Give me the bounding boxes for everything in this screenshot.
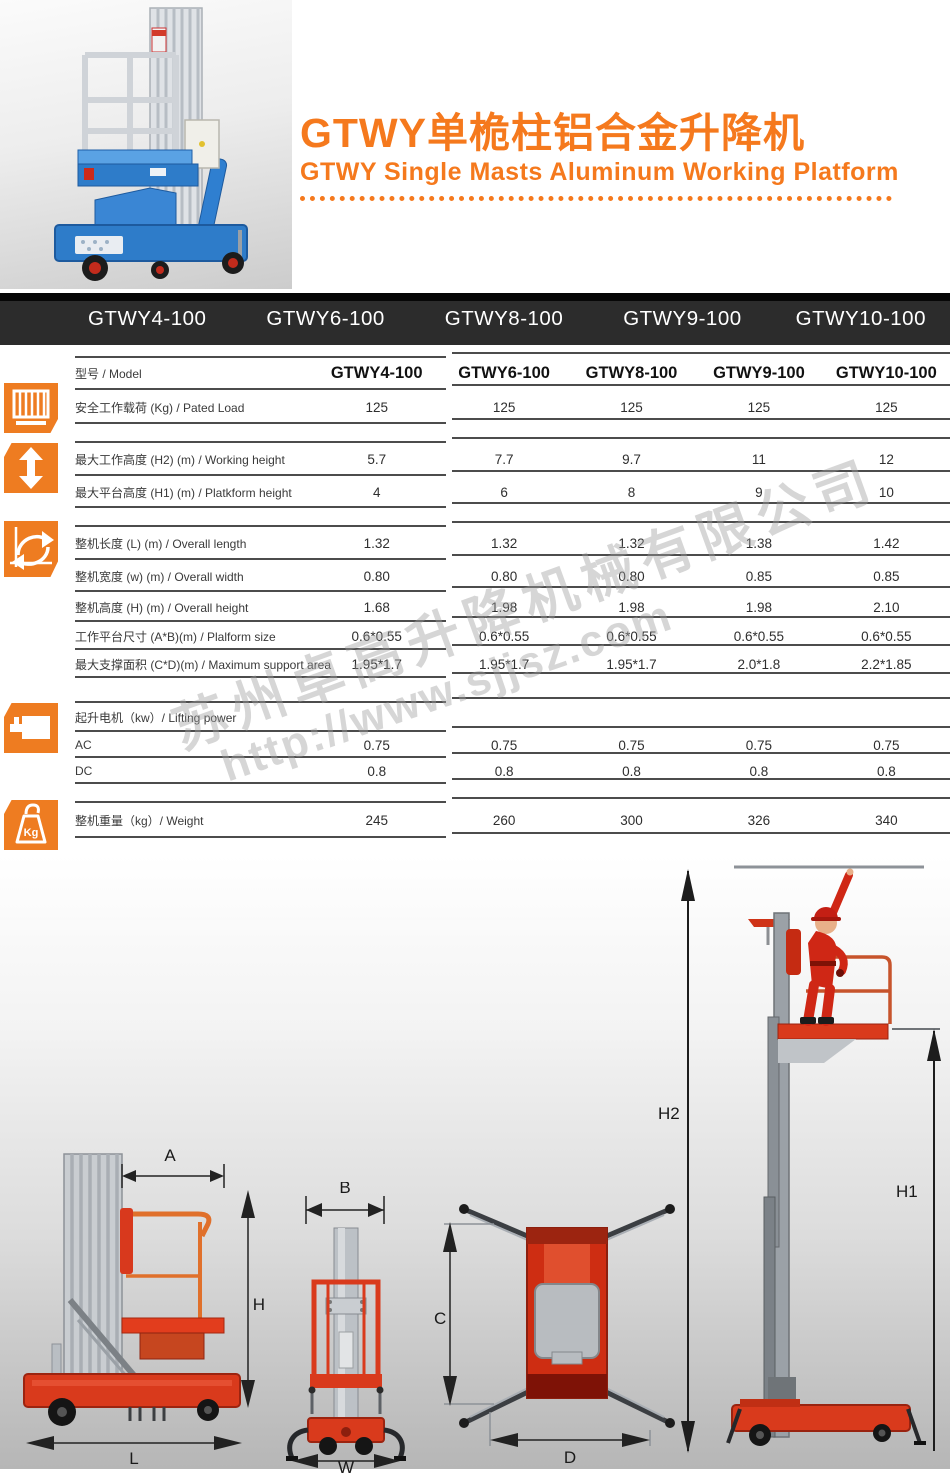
table-rule [452,726,950,728]
table-rule [452,502,950,504]
cage-load-icon [4,383,58,433]
spec-value: 0.80 [313,569,440,584]
spec-value: 1.95*1.7 [313,657,440,672]
spec-value: 0.8 [568,764,695,779]
spec-row-label: 整机重量（kg）/ Weight [75,812,313,829]
spec-value: 0.8 [440,764,567,779]
spec-row: 起升电机（kw）/ Lifting power [75,702,950,732]
spec-value: 326 [695,813,822,828]
dim-label-b: B [339,1182,350,1197]
spec-value: 0.75 [823,738,950,753]
rotation-dimension-icon [4,521,58,577]
spec-value: 0.80 [568,569,695,584]
table-rule [452,832,950,834]
dim-label-h2: H2 [658,1104,680,1123]
spec-row-label: 整机宽度 (w) (m) / Overall width [75,568,313,585]
height-range-icon [4,443,58,493]
dim-label-h: H [253,1295,265,1314]
table-rule [75,801,446,803]
table-rule [452,586,950,588]
spec-value: 0.6*0.55 [568,629,695,644]
spec-value: 5.7 [313,452,440,467]
spec-value: 7.7 [440,452,567,467]
spec-value: 260 [440,813,567,828]
table-rule [452,418,950,420]
spec-row-label: 工作平台尺寸 (A*B)(m) / Plalform size [75,628,313,645]
spec-value: 1.98 [695,600,822,615]
spec-row: 整机重量（kg）/ Weight245260300326340 [75,802,950,838]
spec-value: 0.85 [695,569,822,584]
model-bar-item: GTWY8-100 [415,307,593,331]
spec-value: GTWY8-100 [568,364,695,383]
weight-kg-icon: Kg [4,800,58,850]
spec-value: 0.8 [823,764,950,779]
spec-value: 2.0*1.8 [695,657,822,672]
spec-sheet-page: { "header": { "title_cn": "GTWY单桅柱铝合金升降机… [0,0,950,1469]
spec-value: GTWY10-100 [823,364,950,383]
spec-value: 1.42 [823,536,950,551]
dim-label-a: A [164,1148,176,1165]
spec-value: 0.75 [313,738,440,753]
spec-value: 1.95*1.7 [568,657,695,672]
kg-glyph-label: Kg [24,827,39,839]
spec-value: 2.10 [823,600,950,615]
model-bar: GTWY4-100 GTWY6-100 GTWY8-100 GTWY9-100 … [0,293,950,345]
spec-row-label: AC [75,738,313,752]
dim-label-d: D [564,1448,576,1467]
spec-row: 整机长度 (L) (m) / Overall length1.321.321.3… [75,526,950,560]
spec-value: 245 [313,813,440,828]
spec-value: GTWY6-100 [440,364,567,383]
spec-value: 1.98 [568,600,695,615]
table-rule [75,782,446,784]
spec-row: 整机宽度 (w) (m) / Overall width0.800.800.80… [75,560,950,592]
spec-row: 工作平台尺寸 (A*B)(m) / Plalform size0.6*0.550… [75,622,950,650]
table-rule [75,356,446,358]
spec-value: 0.6*0.55 [823,629,950,644]
dim-label-w: W [338,1458,354,1474]
spec-value: 8 [568,485,695,500]
spec-value: GTWY9-100 [695,364,822,383]
table-rule [452,752,950,754]
diagrams-section: A H L B [0,855,950,1469]
spec-value: 1.38 [695,536,822,551]
spec-value: 1.95*1.7 [440,657,567,672]
spec-value: 9.7 [568,452,695,467]
spec-row: DC0.80.80.80.80.8 [75,758,950,784]
page-title-block: GTWY单桅柱铝合金升降机 GTWY Single Masts Aluminum… [300,112,900,201]
spec-value: 0.75 [440,738,567,753]
spec-value: 2.2*1.85 [823,657,950,672]
spec-row-label: 最大平台高度 (H1) (m) / Platkform height [75,484,313,501]
dim-label-c: C [434,1309,446,1328]
spec-value: 9 [695,485,822,500]
table-rule [452,644,950,646]
spec-value: 0.75 [695,738,822,753]
spec-value: 0.8 [695,764,822,779]
spec-row: AC0.750.750.750.750.75 [75,732,950,758]
table-rule [75,525,446,527]
table-rule [452,778,950,780]
spec-value: 125 [695,400,822,415]
model-bar-item: GTWY9-100 [593,307,771,331]
spec-value: 1.98 [440,600,567,615]
table-rule [75,422,446,424]
spec-row: 最大平台高度 (H1) (m) / Platkform height468910 [75,476,950,508]
spec-row-label: 最大支撑面积 (C*D)(m) / Maximum support area [75,656,313,673]
table-rule [452,672,950,674]
page-title-cn: GTWY单桅柱铝合金升降机 [300,112,900,155]
spec-value: 4 [313,485,440,500]
table-rule [75,676,446,678]
spec-row: 最大工作高度 (H2) (m) / Working height5.77.79.… [75,442,950,476]
table-rule [452,797,950,799]
spec-value: 125 [440,400,567,415]
spec-value: 125 [823,400,950,415]
table-rule [75,506,446,508]
spec-row-label: 最大工作高度 (H2) (m) / Working height [75,451,313,468]
spec-row-label: 整机高度 (H) (m) / Overall height [75,599,313,616]
spec-table-section: 苏州卓高升降机械有限公司 http://www.sjjsz.com [0,345,950,855]
model-bar-item: GTWY10-100 [772,307,950,331]
table-rule [452,437,950,439]
page-title-en: GTWY Single Masts Aluminum Working Platf… [300,158,900,187]
table-rule [452,521,950,523]
diagram-raised-view: H2 H1 [656,857,948,1467]
spec-rows: 型号 / ModelGTWY4-100GTWY6-100GTWY8-100GTW… [75,357,950,838]
dim-label-h1: H1 [896,1182,918,1201]
blue-lift-photo-drawing [0,0,292,289]
spec-row-label: DC [75,764,313,778]
spec-value: 125 [313,400,440,415]
spec-row-label: 整机长度 (L) (m) / Overall length [75,535,313,552]
table-rule [75,441,446,443]
spec-value: GTWY4-100 [313,364,440,383]
spec-value: 0.80 [440,569,567,584]
spec-value: 1.32 [440,536,567,551]
spec-row-label: 起升电机（kw）/ Lifting power [75,709,313,726]
spec-value: 0.6*0.55 [313,629,440,644]
diagram-front-view: B W [272,1182,422,1474]
spec-value: 0.85 [823,569,950,584]
spec-row: 型号 / ModelGTWY4-100GTWY6-100GTWY8-100GTW… [75,357,950,390]
table-rule [452,697,950,699]
spec-value: 0.6*0.55 [440,629,567,644]
model-bar-item: GTWY6-100 [236,307,414,331]
spec-value: 12 [823,452,950,467]
spec-row: 整机高度 (H) (m) / Overall height1.681.981.9… [75,592,950,622]
spec-row: 最大支撑面积 (C*D)(m) / Maximum support area1.… [75,650,950,678]
table-rule [75,701,446,703]
spec-value: 0.6*0.55 [695,629,822,644]
diagram-top-view: C D [432,1194,677,1469]
product-photo [0,0,292,289]
spec-value: 1.32 [568,536,695,551]
table-rule [75,836,446,838]
spec-value: 0.75 [568,738,695,753]
model-bar-item: GTWY4-100 [58,307,236,331]
spec-row-label: 安全工作载荷 (Kg) / Pated Load [75,399,313,416]
table-rule [452,616,950,618]
spec-value: 1.68 [313,600,440,615]
table-rule [452,470,950,472]
table-rule [452,352,950,354]
spec-row-label: 型号 / Model [75,365,313,382]
spec-row: 安全工作载荷 (Kg) / Pated Load125125125125125 [75,390,950,424]
spec-value: 0.8 [313,764,440,779]
diagram-side-view: A H L [12,1148,267,1466]
dim-label-l: L [129,1449,138,1466]
spec-value: 1.32 [313,536,440,551]
spec-value: 6 [440,485,567,500]
table-rule [452,554,950,556]
spec-value: 125 [568,400,695,415]
spec-value: 340 [823,813,950,828]
spec-value: 11 [695,452,822,467]
spec-value: 10 [823,485,950,500]
spec-value: 300 [568,813,695,828]
table-rule [452,384,950,386]
title-dotted-rule [300,196,892,201]
motor-icon [4,703,58,753]
